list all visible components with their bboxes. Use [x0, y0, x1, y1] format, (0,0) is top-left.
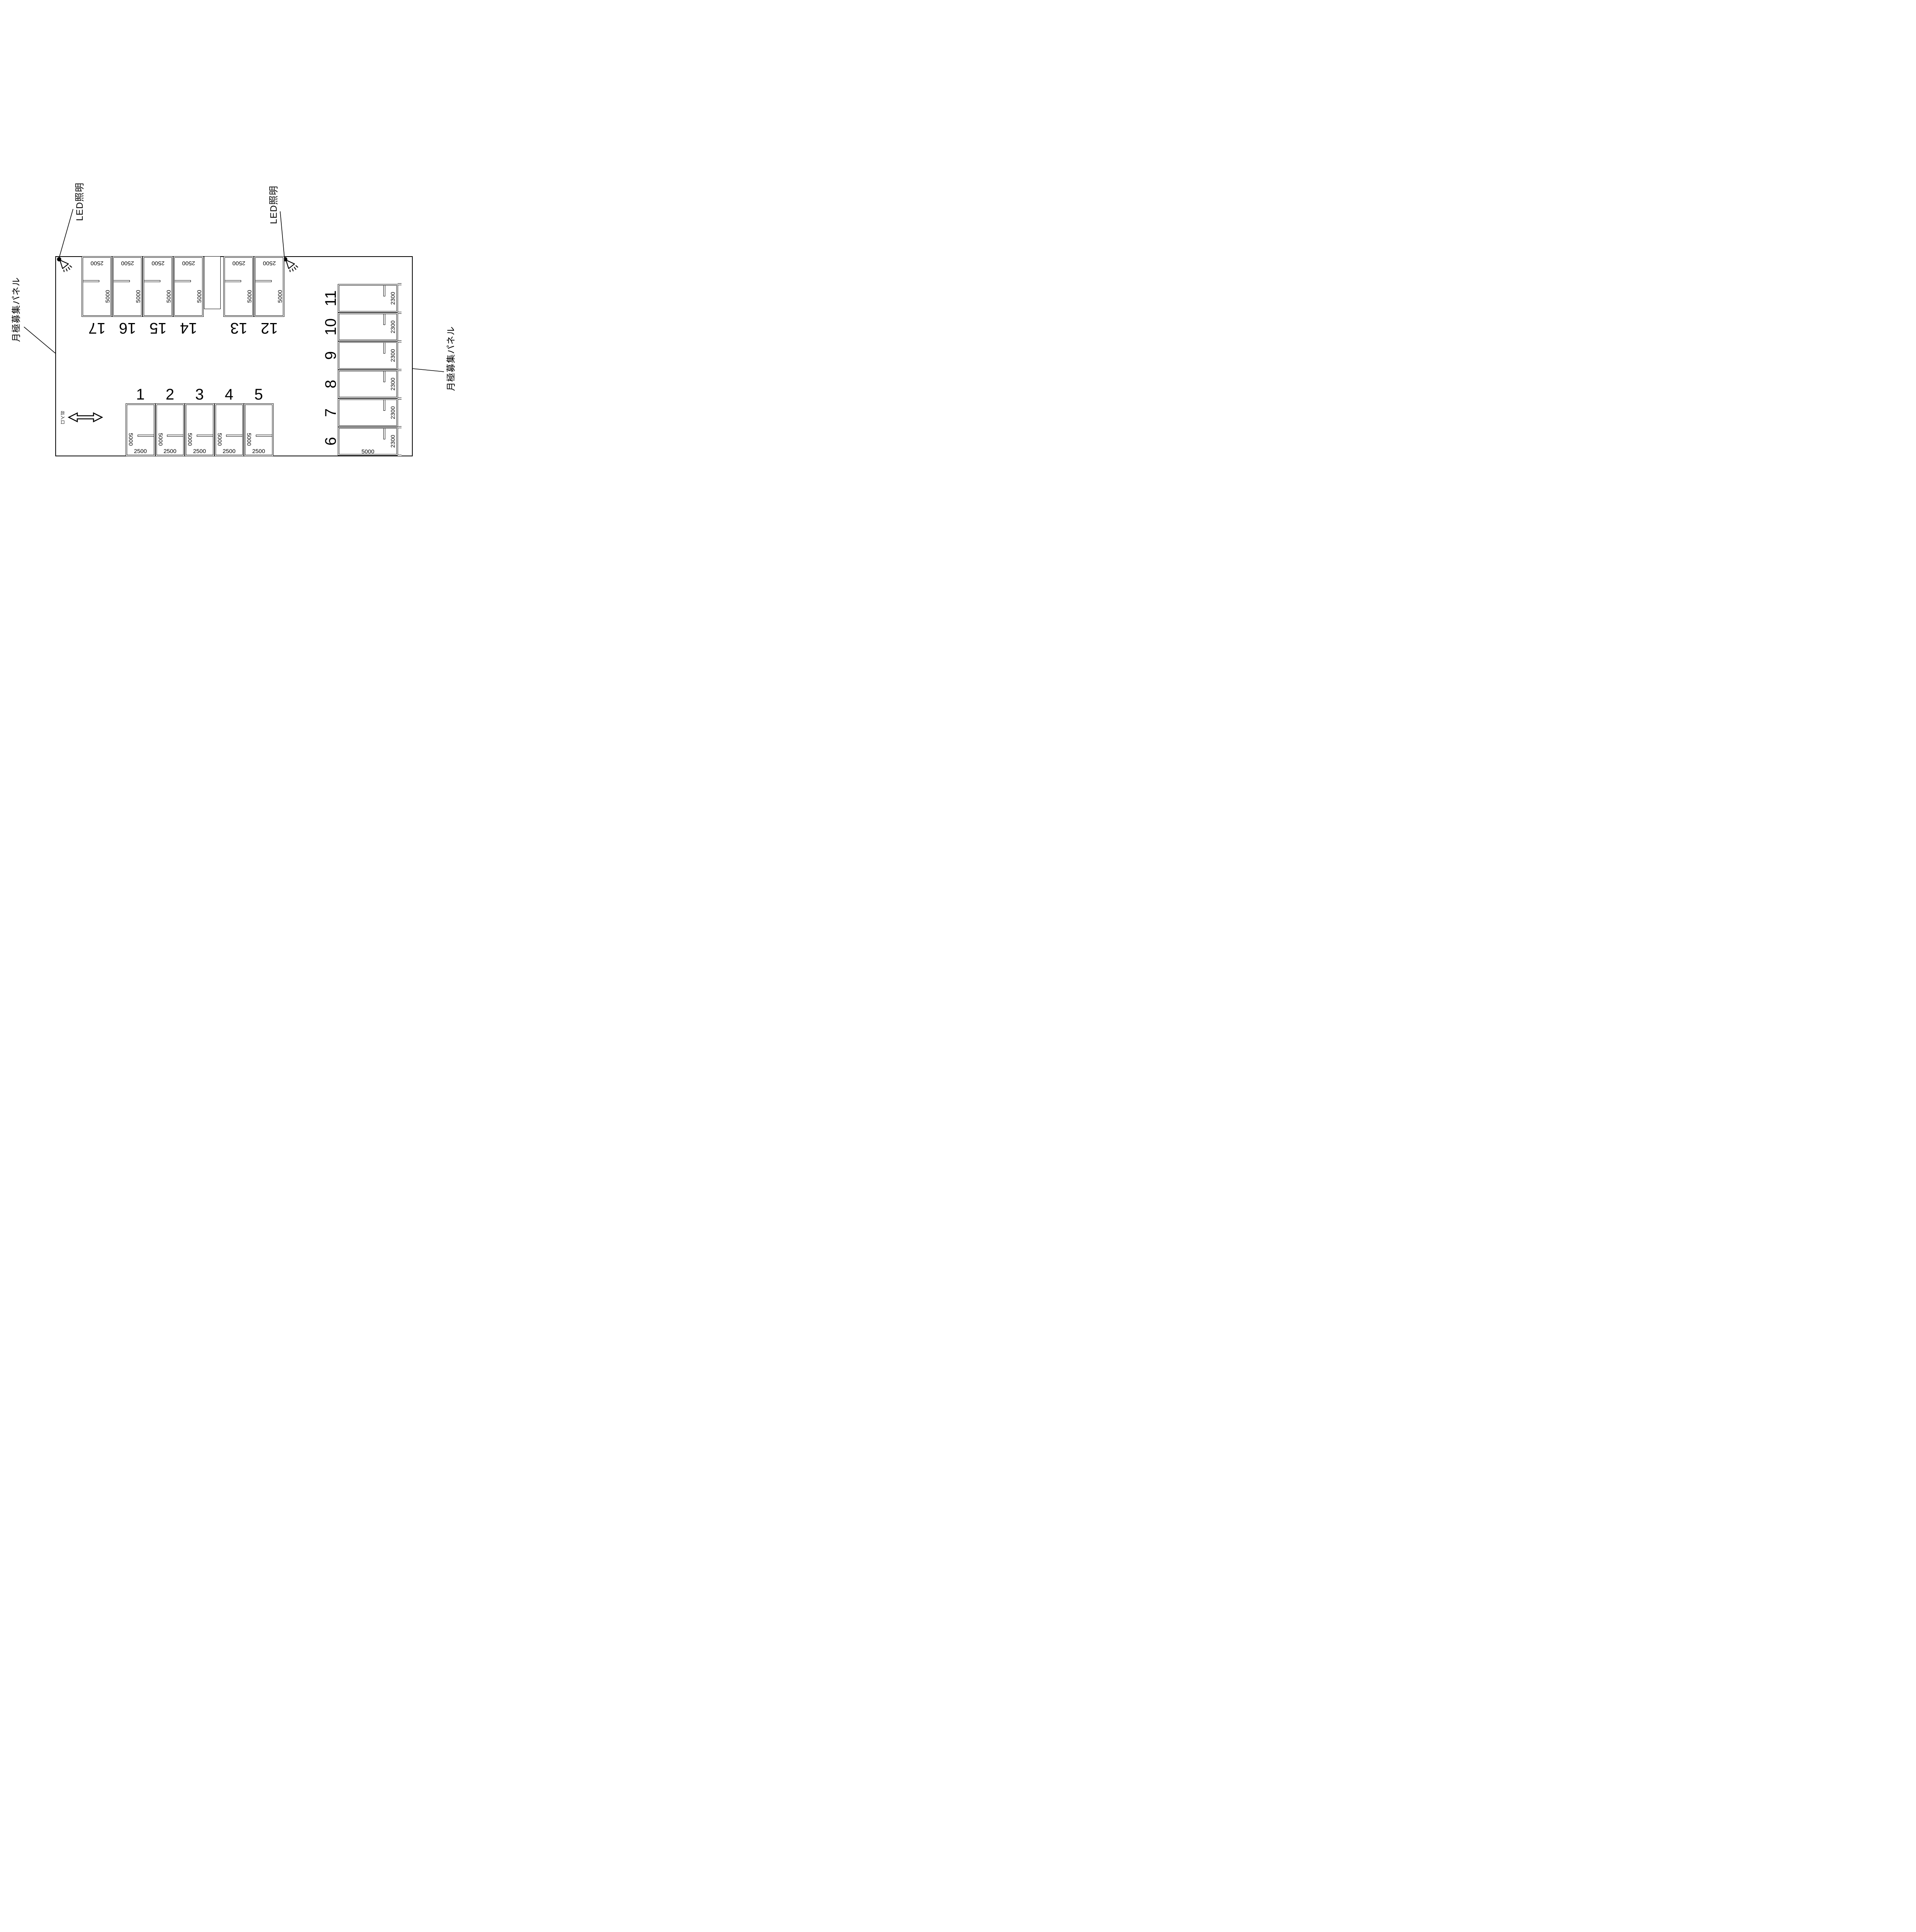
wheel-stop-bar — [383, 400, 385, 411]
stall-number-15: 15 — [149, 320, 167, 336]
stall-number-3: 3 — [195, 387, 204, 402]
divider-tick — [398, 398, 402, 400]
stall-width-dim: 2500 — [151, 260, 164, 266]
parking-stall-12: 25005000 — [254, 256, 284, 317]
stall-width-dim: 2300 — [390, 320, 396, 333]
stall-number-6: 6 — [323, 437, 339, 446]
stall-number-13: 13 — [230, 320, 247, 336]
parking-site-plan: LED照明 LED照明 月極募集パネル 月極募集パネル 出入口 250050 — [0, 0, 479, 678]
stall-width-dim: 2300 — [390, 292, 396, 304]
stall-number-5: 5 — [254, 387, 263, 402]
led-light-icon — [283, 257, 298, 272]
parking-stall-13: 25005000 — [223, 256, 254, 317]
stall-number-8: 8 — [323, 380, 339, 388]
stall-inner-border — [245, 405, 272, 455]
stall-width-dim: 2300 — [390, 406, 396, 419]
wheel-stop-bar — [255, 280, 272, 282]
leader-line-panel-right — [413, 369, 444, 372]
stall-number-4: 4 — [225, 387, 233, 402]
wheel-stop-bar — [226, 435, 243, 437]
parking-stall-8: 2300 — [338, 370, 398, 398]
stall-number-7: 7 — [323, 408, 339, 417]
divider-tick — [398, 283, 402, 285]
parking-stall-2: 25005000 — [155, 403, 185, 456]
parking-stall-5: 25005000 — [244, 403, 274, 456]
stall-number-10: 10 — [323, 318, 339, 336]
parking-stall-7: 2300 — [338, 398, 398, 427]
parking-stall-15: 25005000 — [143, 256, 173, 317]
divider-tick — [398, 455, 402, 457]
stall-depth-dim: 5000 — [128, 433, 134, 446]
stall-width-dim: 2300 — [390, 378, 396, 390]
parking-stall-3: 25005000 — [185, 403, 214, 456]
stall-depth-dim: 5000 — [277, 290, 283, 303]
stall-depth-dim: 5000 — [157, 433, 163, 446]
stall-inner-border — [127, 405, 154, 455]
stall-inner-border — [186, 405, 213, 455]
stall-number-1: 1 — [136, 387, 145, 402]
wheel-stop-bar — [174, 280, 191, 282]
parking-stall-4: 25005000 — [214, 403, 244, 456]
wheel-stop-bar — [144, 280, 160, 282]
wheel-stop-bar — [167, 435, 184, 437]
wheel-stop-bar — [197, 435, 213, 437]
stall-inner-border — [339, 285, 397, 311]
direction-arrow-icon — [69, 413, 102, 422]
parking-stall-16: 25005000 — [112, 256, 143, 317]
parking-stall-10: 2300 — [338, 313, 398, 341]
leader-line-led-1 — [59, 209, 73, 258]
stall-inner-border — [339, 400, 397, 426]
stall-width-dim: 2500 — [121, 260, 134, 266]
stall-number-12: 12 — [260, 320, 278, 336]
stall-width-dim: 2300 — [390, 435, 396, 447]
divider-tick — [398, 340, 402, 342]
stall-width-dim: 2500 — [223, 449, 235, 454]
parking-stall-11: 2300 — [338, 284, 398, 313]
stall-number-9: 9 — [323, 351, 339, 360]
stall-width-dim: 2500 — [193, 449, 206, 454]
stall-width-dim: 2500 — [90, 260, 103, 266]
wheel-stop-bar — [383, 428, 385, 439]
stall-depth-dim: 5000 — [166, 290, 172, 303]
stall-width-dim: 2300 — [390, 349, 396, 362]
leader-line-panel-left — [24, 327, 55, 353]
wheel-stop-bar — [383, 285, 385, 296]
led-light-icon — [57, 257, 72, 272]
divider-tick — [398, 312, 402, 314]
wheel-stop-bar — [256, 435, 272, 437]
stall-inner-border — [339, 342, 397, 369]
stall-width-dim: 2500 — [182, 260, 195, 266]
stall-width-dim: 2500 — [232, 260, 245, 266]
wheel-stop-bar — [383, 314, 385, 325]
stall-width-dim: 2500 — [163, 449, 176, 454]
stall-depth-dim: 5000 — [197, 290, 202, 303]
stall-inner-border — [216, 405, 243, 455]
leader-line-led-2 — [280, 211, 284, 258]
stall-number-17: 17 — [88, 320, 105, 336]
stall-depth-dim: 5000 — [247, 290, 253, 303]
stall-number-14: 14 — [180, 320, 197, 336]
stall-depth-dim: 5000 — [105, 290, 111, 303]
stall-depth-dim: 5000 — [187, 433, 193, 446]
stall-depth-dim: 5000 — [216, 433, 222, 446]
stall-length-dim: 5000 — [361, 449, 374, 455]
wheel-stop-bar — [383, 342, 385, 354]
wheel-stop-bar — [225, 280, 241, 282]
stall-inner-border — [157, 405, 184, 455]
parking-stall-14: 25005000 — [173, 256, 204, 317]
stall-width-dim: 2500 — [263, 260, 276, 266]
wheel-stop-bar — [138, 435, 154, 437]
wheel-stop-bar — [113, 280, 130, 282]
parking-stall-17: 25005000 — [82, 256, 112, 317]
stall-inner-border — [339, 371, 397, 397]
parking-stall-9: 2300 — [338, 341, 398, 370]
stall-inner-border — [339, 314, 397, 340]
stall-width-dim: 2500 — [134, 449, 147, 454]
parking-stall-1: 25005000 — [126, 403, 155, 456]
stall-number-11: 11 — [323, 290, 339, 306]
divider-tick — [398, 369, 402, 371]
parking-stall-6: 23005000 — [338, 427, 398, 456]
stall-number-16: 16 — [119, 320, 136, 336]
annotation-lines-layer — [0, 0, 479, 678]
stall-width-dim: 2500 — [252, 449, 265, 454]
stall-number-2: 2 — [166, 387, 174, 402]
stall-depth-dim: 5000 — [246, 433, 252, 446]
divider-tick — [398, 426, 402, 428]
wheel-stop-bar — [83, 280, 99, 282]
stall-depth-dim: 5000 — [136, 290, 141, 303]
wheel-stop-bar — [383, 371, 385, 382]
